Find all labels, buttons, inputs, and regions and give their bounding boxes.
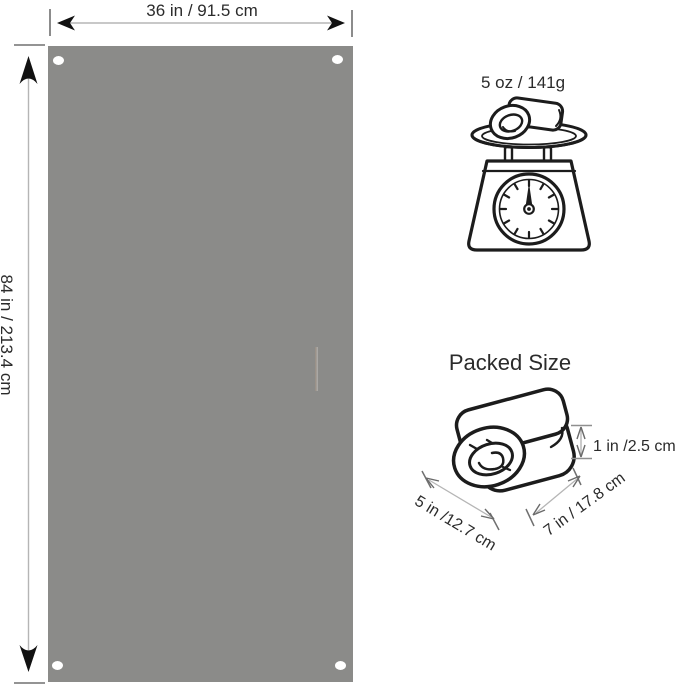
tarp-height-label: 84 in / 213.4 cm xyxy=(0,269,16,401)
height-dimension-ticks xyxy=(14,45,45,683)
product-dimension-diagram: 36 in / 91.5 cm 84 in / 213.4 cm 5 oz / … xyxy=(0,0,679,686)
packed-thickness-label: 1 in /2.5 cm xyxy=(593,438,679,456)
rolled-blanket-icon xyxy=(446,386,579,496)
packed-size-title: Packed Size xyxy=(420,350,600,376)
tarp-width-label: 36 in / 91.5 cm xyxy=(97,1,307,21)
kitchen-scale-icon xyxy=(469,97,590,250)
weight-label: 5 oz / 141g xyxy=(443,73,603,93)
diagram-artwork xyxy=(0,0,679,686)
scale-needle-dot xyxy=(527,207,531,211)
height-dimension xyxy=(14,45,45,683)
